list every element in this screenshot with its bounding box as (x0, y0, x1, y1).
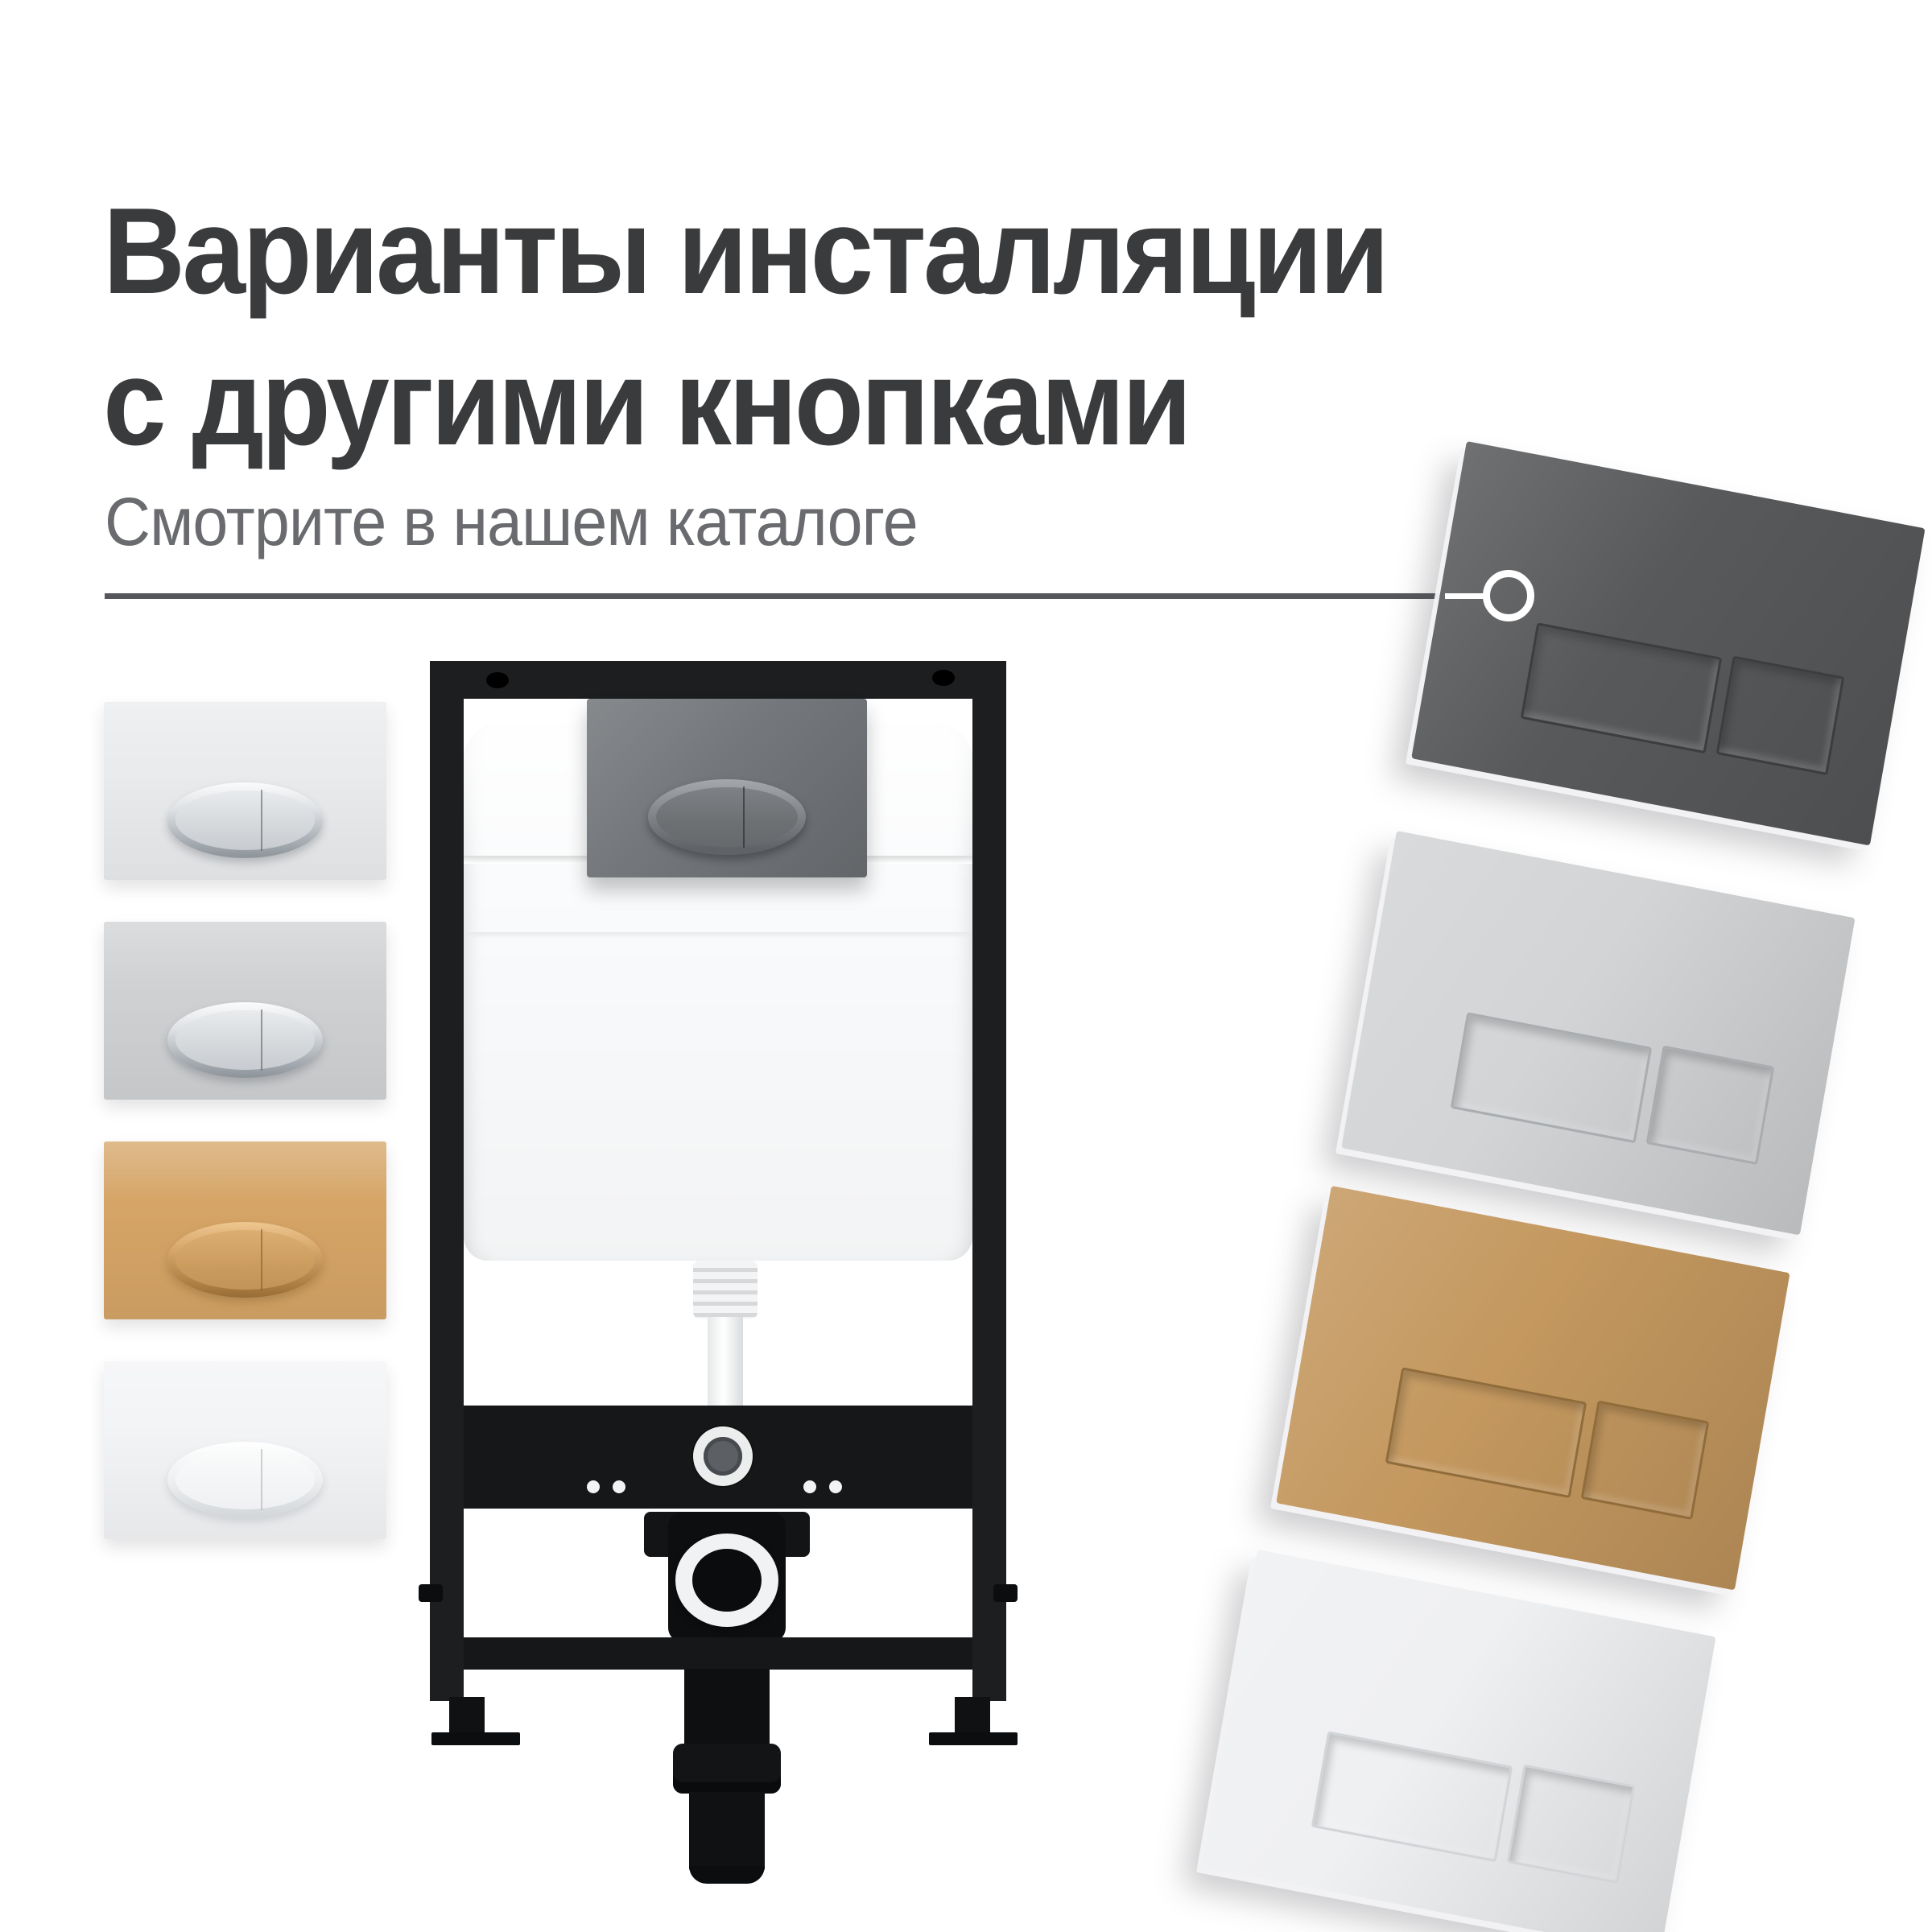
frame-screw-hole (932, 670, 955, 686)
drain-pipe-coupling (673, 1744, 781, 1794)
oval-button-split-line (743, 786, 745, 848)
flush-plate-oval-chrome-gray (104, 922, 386, 1100)
drain-pipe-upper (684, 1669, 770, 1749)
small-flush-button (1646, 1046, 1775, 1166)
subtitle: Смотрите в нашем каталоге (105, 481, 918, 562)
water-inlet-port-cap (704, 1437, 742, 1476)
oval-button-split-line (261, 790, 262, 851)
flush-pipe (708, 1317, 743, 1407)
water-inlet-port (693, 1426, 753, 1486)
frame-screw-hole (486, 672, 509, 688)
title-line-2: с другими кнопками (103, 327, 1386, 478)
callout-ring-marker (1483, 570, 1534, 621)
frame-foot-plate (431, 1732, 520, 1745)
big-flush-button (1385, 1367, 1587, 1498)
callout-line-white-segment (1445, 593, 1484, 599)
flush-plate-rect-light-gray (1341, 831, 1855, 1235)
mounting-hole (613, 1480, 625, 1493)
drain-pipe-lower (689, 1792, 765, 1869)
small-flush-button (1581, 1401, 1710, 1521)
oval-dual-flush-button (648, 779, 806, 855)
oval-button-face (175, 1230, 315, 1290)
flush-plate-oval-white (104, 1361, 386, 1539)
oval-button-split-line (261, 1229, 262, 1290)
flush-plate-oval-gold (104, 1141, 386, 1319)
mounted-flush-plate-gray (587, 699, 867, 877)
oval-dual-flush-button (167, 1442, 323, 1517)
drain-elbow-outlet (692, 1549, 762, 1612)
oval-dual-flush-button (167, 1002, 323, 1078)
frame-foot-plate (929, 1732, 1018, 1745)
oval-button-face (175, 1450, 315, 1509)
big-flush-button (1451, 1012, 1653, 1143)
frame-right-bar (972, 661, 1006, 1701)
small-flush-button (1507, 1765, 1636, 1885)
drain-pipe-end (689, 1866, 765, 1884)
adjustment-bolt (993, 1584, 1018, 1602)
product-infographic: Варианты инсталляции с другими кнопками … (0, 0, 1932, 1932)
cistern-body-seam (464, 932, 972, 939)
flush-plate-oval-chrome-light (104, 702, 386, 880)
title-line-1: Варианты инсталляции (103, 175, 1386, 327)
frame-foot (955, 1697, 990, 1736)
mounting-hole (829, 1480, 842, 1493)
oval-button-split-line (261, 1449, 262, 1510)
oval-button-face (175, 791, 315, 850)
frame-top-bar (430, 661, 1006, 699)
frame-left-bar (430, 661, 464, 1701)
oval-button-face (656, 787, 798, 847)
installation-frame (419, 660, 1030, 1896)
big-flush-button (1311, 1731, 1513, 1862)
mounting-hole (803, 1480, 816, 1493)
page-title: Варианты инсталляции с другими кнопками (103, 175, 1386, 478)
flush-plate-rect-white (1202, 1550, 1715, 1932)
small-flush-button (1716, 656, 1845, 776)
oval-button-face (175, 1010, 315, 1070)
callout-line (105, 593, 1445, 599)
flush-plate-rect-gold (1276, 1186, 1790, 1590)
flush-pipe-threaded-section (693, 1261, 758, 1319)
oval-button-split-line (261, 1009, 262, 1071)
frame-lower-crossbar (464, 1637, 972, 1670)
big-flush-button (1521, 622, 1723, 753)
flush-plate-rect-dark-gray (1411, 441, 1925, 845)
drain-elbow-outlet-ring (675, 1534, 778, 1627)
frame-foot (449, 1697, 485, 1736)
adjustment-bolt (419, 1584, 443, 1602)
oval-dual-flush-button (167, 1222, 323, 1298)
oval-dual-flush-button (167, 782, 323, 858)
mounting-hole (587, 1480, 600, 1493)
